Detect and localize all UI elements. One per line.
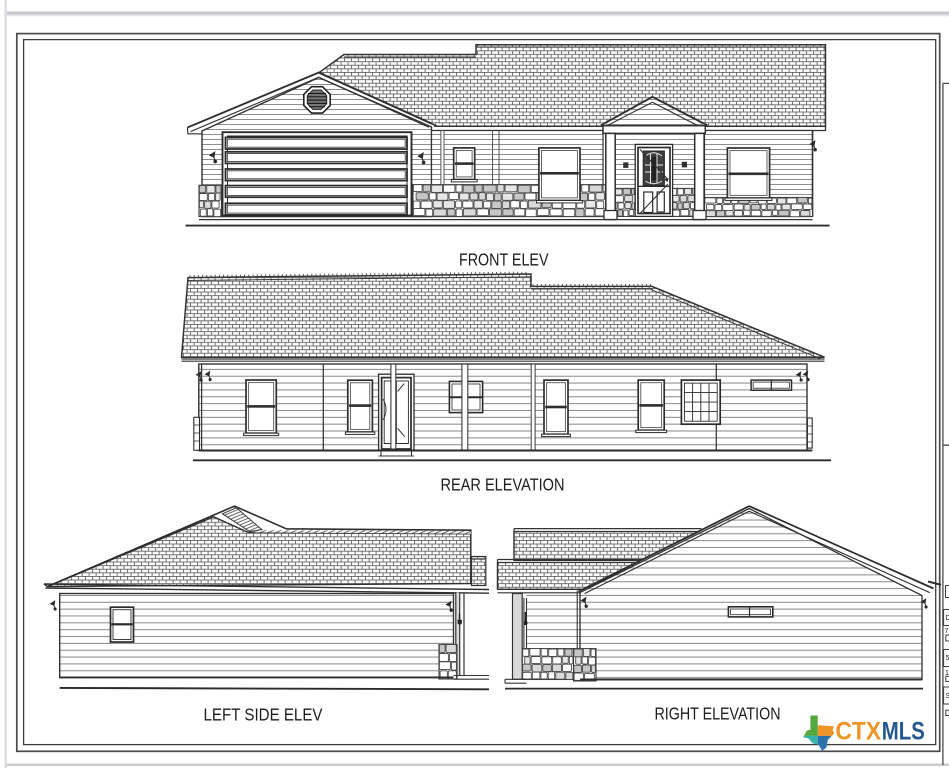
svg-text:FRONT ELEV: FRONT ELEV [459, 250, 549, 270]
svg-text:MLS: MLS [882, 718, 925, 746]
svg-text:7: 7 [945, 628, 949, 635]
svg-text:D: D [946, 615, 949, 622]
svg-text:S: S [946, 693, 949, 700]
svg-text:REAR ELEVATION: REAR ELEVATION [441, 475, 565, 495]
svg-text:CTX: CTX [836, 718, 882, 746]
svg-text:5: 5 [946, 655, 949, 662]
svg-text:1: 1 [945, 670, 949, 677]
svg-text:RIGHT ELEVATION: RIGHT ELEVATION [655, 704, 781, 724]
svg-text:LEFT SIDE ELEV: LEFT SIDE ELEV [204, 705, 323, 725]
